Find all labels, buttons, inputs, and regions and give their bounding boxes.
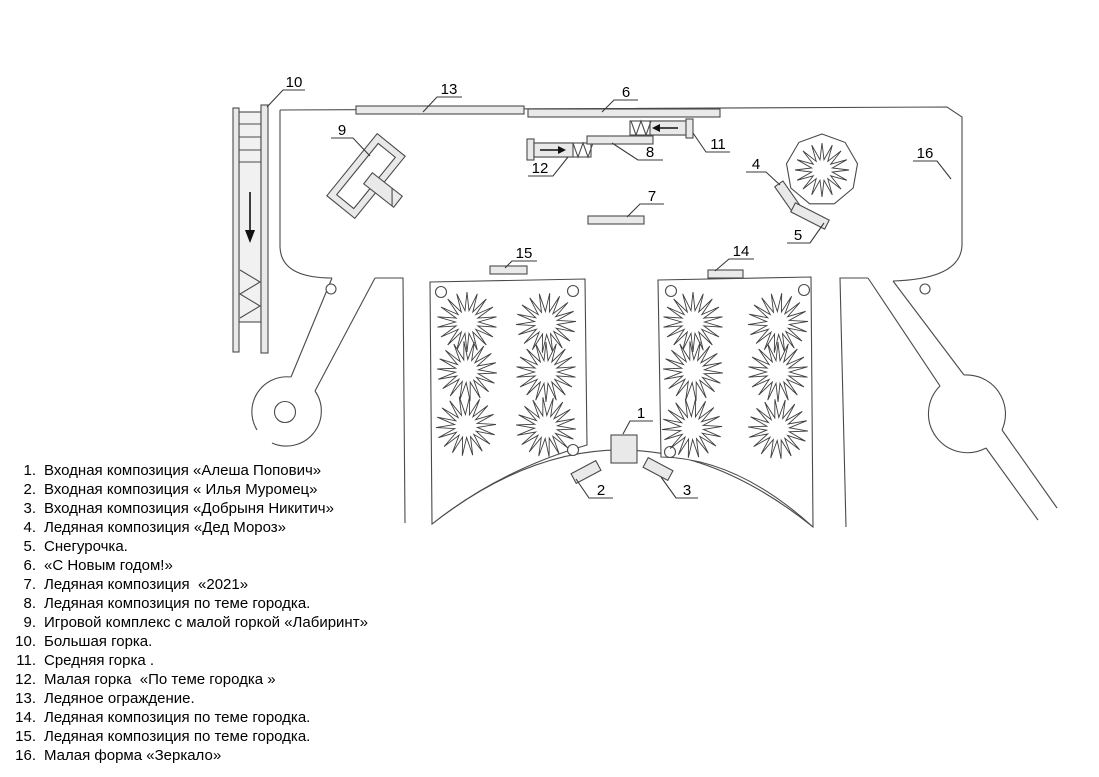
- legend-item: 8.Ледяная композиция по теме городка.: [6, 594, 436, 613]
- svg-text:9: 9: [338, 122, 346, 139]
- svg-text:14: 14: [733, 243, 750, 260]
- panel-corner-circle: [666, 286, 677, 297]
- panel-corner-circle: [436, 287, 447, 298]
- svg-text:11: 11: [710, 136, 726, 153]
- lamp-post-circle: [920, 284, 930, 294]
- ice-composition-2021: [588, 216, 644, 224]
- legend-item: 16.Малая форма «Зеркало»: [6, 746, 436, 765]
- ice-composition-15: [490, 266, 527, 274]
- legend-item: 1.Входная композиция «Алеша Попович»: [6, 461, 436, 480]
- entrance-dobrynya-nikitich: [643, 458, 673, 481]
- middle-slide: [630, 119, 693, 138]
- legend-item: 7.Ледяная композиция «2021»: [6, 575, 436, 594]
- callout-12: 12: [528, 157, 568, 177]
- ice-fence: [356, 106, 524, 114]
- svg-text:1: 1: [637, 405, 645, 422]
- svg-text:15: 15: [516, 245, 533, 262]
- snegurochka-figure: [791, 203, 829, 229]
- panel-corner-circle: [568, 286, 579, 297]
- callout-6: 6: [602, 84, 638, 112]
- panel-corner-circle: [799, 285, 810, 296]
- panel-corner-circle: [568, 445, 579, 456]
- legend-item: 12.Малая горка «По теме городка »: [6, 670, 436, 689]
- legend-item: 3.Входная композиция «Добрыня Никитич»: [6, 499, 436, 518]
- svg-text:6: 6: [622, 84, 630, 101]
- right-walkway: [868, 278, 1057, 520]
- callout-8: 8: [612, 143, 663, 161]
- callout-1: 1: [623, 405, 653, 434]
- ice-composition-8: [587, 136, 653, 144]
- svg-text:7: 7: [648, 188, 656, 205]
- svg-text:2: 2: [597, 482, 605, 499]
- legend-item: 9.Игровой комплекс с малой горкой «Лабир…: [6, 613, 436, 632]
- svg-text:5: 5: [794, 227, 802, 244]
- svg-text:13: 13: [441, 81, 458, 98]
- callout-16: 16: [913, 145, 951, 179]
- svg-text:16: 16: [917, 145, 934, 162]
- big-slide: [233, 105, 268, 353]
- lamp-post-circle: [326, 284, 336, 294]
- labyrinth-complex: [327, 134, 405, 219]
- svg-text:3: 3: [683, 482, 691, 499]
- callout-4: 4: [746, 156, 780, 185]
- svg-text:8: 8: [646, 144, 654, 161]
- ice-tree-panels: [430, 277, 813, 527]
- legend-item: 14.Ледяная композиция по теме городка.: [6, 708, 436, 727]
- small-slide: [527, 139, 593, 160]
- legend-item: 4.Ледяная композиция «Дед Мороз»: [6, 518, 436, 537]
- callout-11: 11: [693, 133, 730, 153]
- callout-14: 14: [715, 243, 754, 271]
- legend-item: 6.«С Новым годом!»: [6, 556, 436, 575]
- callout-15: 15: [505, 245, 537, 268]
- svg-text:10: 10: [286, 74, 303, 91]
- legend-item: 11.Средняя горка .: [6, 651, 436, 670]
- callout-10: 10: [267, 74, 305, 107]
- ice-composition-14: [708, 270, 743, 278]
- legend-item: 5.Снегурочка.: [6, 537, 436, 556]
- entrance-alesha-popovich: [611, 435, 637, 463]
- legend-item: 13.Ледяное ограждение.: [6, 689, 436, 708]
- legend-item: 10.Большая горка.: [6, 632, 436, 651]
- legend-item: 2.Входная композиция « Илья Муромец»: [6, 480, 436, 499]
- site-plan-page: 1 2 3 4 5 6 7 8 9 10 11 12 13 14 15 16 1…: [0, 0, 1099, 777]
- new-year-tree: [787, 134, 858, 204]
- legend: 1.Входная композиция «Алеша Попович» 2.В…: [6, 461, 436, 765]
- new-year-banner: [528, 109, 720, 117]
- entrance-ilya-muromets: [571, 461, 601, 484]
- left-walkway-ring: [252, 278, 375, 446]
- callout-7: 7: [627, 188, 664, 217]
- svg-text:4: 4: [752, 156, 760, 173]
- legend-item: 15.Ледяная композиция по теме городка.: [6, 727, 436, 746]
- svg-text:12: 12: [532, 160, 549, 177]
- callout-2: 2: [576, 479, 613, 499]
